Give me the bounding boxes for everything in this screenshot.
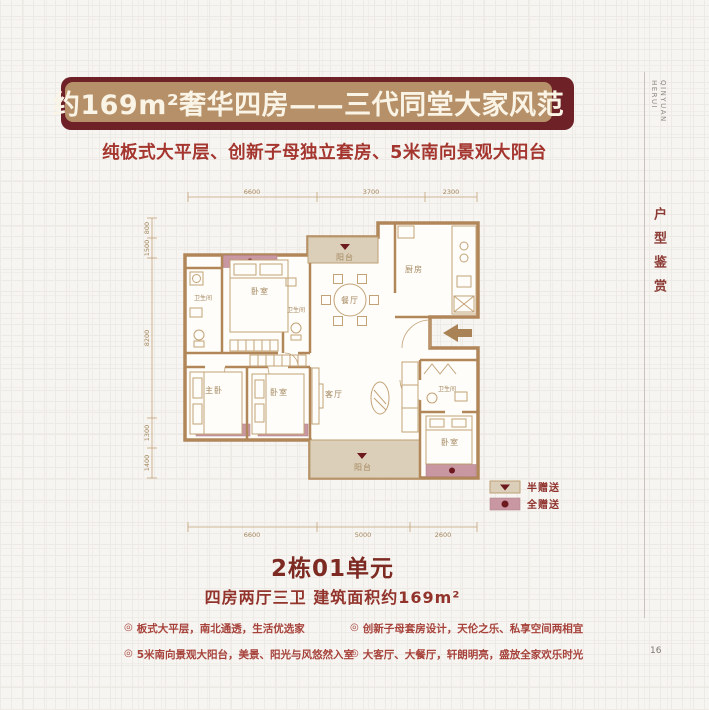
- room-label-living: 客厅: [325, 389, 343, 399]
- unit-title: 2栋01单元: [140, 549, 525, 583]
- room-label-bath-suite: 卫生间: [438, 385, 456, 393]
- feature-text: 5米南向景观大阳台，美景、阳光与风悠然入室: [137, 647, 354, 662]
- title-banner: 约169m²奢华四房——三代同堂大家风范: [65, 82, 552, 122]
- legend-full-gift-label: 全赠送: [526, 498, 560, 511]
- feature-item: ◎ 5米南向景观大阳台，美景、阳光与风悠然入室: [124, 647, 340, 662]
- feature-text: 大客厅、大餐厅，轩朗明亮，盛放全家欢乐时光: [363, 647, 584, 662]
- dim-top-1: 6600: [244, 188, 261, 196]
- bed-icon-top-bedroom: [230, 260, 288, 332]
- legend: 半赠送 全赠送: [490, 481, 560, 511]
- sidebar-divider: [644, 72, 645, 618]
- room-label-kitchen: 厨房: [405, 264, 423, 274]
- balcony-bottom-area: [310, 440, 420, 478]
- bullet-icon: ◎: [350, 621, 359, 634]
- bullet-icon: ◎: [124, 621, 133, 634]
- bed-icon-master: [190, 372, 242, 434]
- room-label-bed-suite: 卧室: [441, 437, 459, 447]
- bed-icon-bottom-bedroom: [252, 374, 304, 434]
- banner-plate: 约169m²奢华四房——三代同堂大家风范: [65, 82, 552, 122]
- dim-left-3: 8200: [143, 330, 151, 347]
- brand-vertical-text: QINYUAN HERUI: [649, 80, 667, 138]
- page-number: 16: [650, 646, 661, 656]
- feature-text: 板式大平层，南北通透，生活优选家: [137, 621, 305, 636]
- page-title: 约169m²奢华四房——三代同堂大家风范: [53, 83, 564, 122]
- dim-top-2: 3700: [363, 188, 380, 196]
- bullet-icon: ◎: [124, 647, 133, 660]
- dim-top-3: 2300: [443, 188, 460, 196]
- feature-list: ◎ 板式大平层，南北通透，生活优选家 ◎ 创新子母套房设计，天伦之乐、私享空间两…: [124, 621, 594, 662]
- room-label-balcony-bottom: 阳台: [354, 462, 372, 472]
- dim-left-5: 1400: [143, 455, 151, 472]
- feature-item: ◎ 板式大平层，南北通透，生活优选家: [124, 621, 340, 636]
- legend-half-gift-label: 半赠送: [527, 481, 560, 494]
- floorplan-diagram: 阳台 厨房 餐厅 卫生间 卧室 卫生间 主卧 卧室 客厅 卫生间 卧室 阳台: [140, 183, 585, 545]
- room-label-dining: 餐厅: [341, 296, 359, 305]
- dim-left-2: 1500: [143, 240, 151, 257]
- room-label-bed-top: 卧室: [251, 286, 269, 296]
- unit-spec: 四房两厅三卫 建筑面积约169m²: [140, 584, 525, 608]
- dim-bottom-3: 2600: [435, 531, 452, 539]
- dim-left-1: 800: [143, 222, 151, 234]
- dim-left-4: 1300: [143, 425, 151, 442]
- bullet-icon: ◎: [350, 647, 359, 660]
- feature-item: ◎ 大客厅、大餐厅，轩朗明亮，盛放全家欢乐时光: [350, 647, 594, 662]
- room-label-bath-mid: 卫生间: [287, 306, 305, 314]
- subtitle: 纯板式大平层、创新子母独立套房、5米南向景观大阳台: [0, 139, 649, 164]
- room-label-bed-bottom: 卧室: [270, 387, 288, 397]
- feature-text: 创新子母套房设计，天伦之乐、私享空间两相宜: [363, 621, 584, 636]
- room-label-bath-left: 卫生间: [194, 294, 212, 302]
- room-label-balcony-top: 阳台: [336, 252, 354, 262]
- brochure-page: 约169m²奢华四房——三代同堂大家风范 纯板式大平层、创新子母独立套房、5米南…: [0, 0, 709, 710]
- dim-bottom-1: 6600: [244, 531, 261, 539]
- section-vertical-text: 户型鉴赏: [649, 207, 668, 303]
- feature-item: ◎ 创新子母套房设计，天伦之乐、私享空间两相宜: [350, 621, 594, 636]
- room-label-master: 主卧: [205, 385, 223, 395]
- entry-arrow-icon: [443, 324, 472, 342]
- dim-bottom-2: 5000: [355, 531, 372, 539]
